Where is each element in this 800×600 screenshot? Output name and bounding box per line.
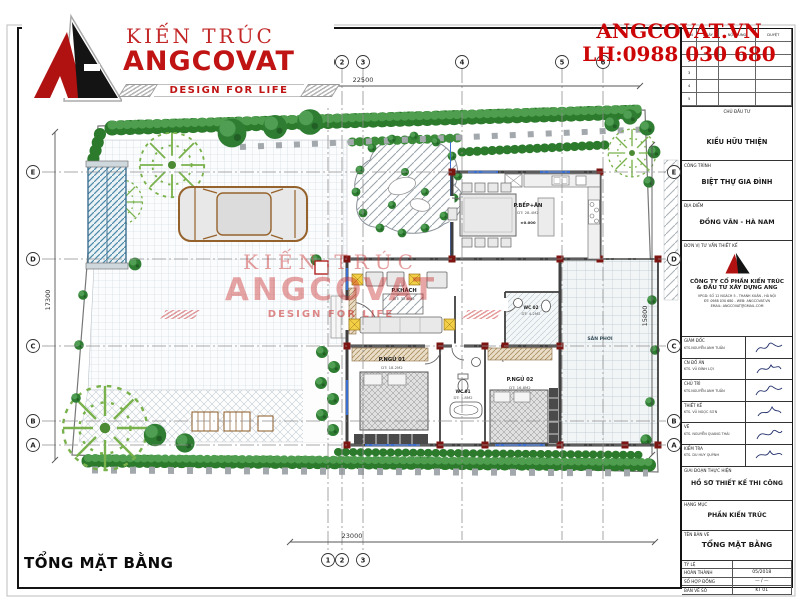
grid-col-6: 6	[601, 59, 606, 67]
meta-date-value: 05/2018	[733, 569, 792, 578]
stage-value: HỒ SƠ THIẾT KẾ THI CÔNG	[682, 480, 792, 487]
car	[179, 187, 307, 241]
location-label: ĐỊA ĐIỂM	[682, 201, 792, 208]
stage-label: GIAI ĐOẠN THỰC HIỆN	[682, 467, 792, 474]
company-logo: KIẾN TRÚC ANGCOVAT DESIGN FOR LIFE	[22, 14, 334, 108]
side-strip-hatch	[664, 160, 678, 300]
room-label-yard: SÂN PHƠI	[587, 335, 613, 342]
rev-row-4: 4	[682, 80, 697, 93]
grid-col-2: 2	[340, 59, 345, 67]
grid-row-d2: D	[671, 256, 677, 264]
planter-box	[315, 261, 328, 274]
project-label: CÔNG TRÌNH	[682, 161, 792, 168]
rev-col-noidung: NỘI DUNG	[719, 29, 755, 42]
grid-col-2b: 2	[340, 557, 345, 565]
category-label: HẠNG MỤC	[682, 501, 792, 508]
consultant-addr3: EMAIL: ANGCOVAT@GMAIL.COM	[682, 304, 792, 309]
room-label-bed1: P.NGỦ 01	[379, 355, 406, 363]
meta-scale-label: TỶ LỆ	[682, 561, 733, 570]
logo-tagline-ribbon: DESIGN FOR LIFE	[122, 84, 336, 97]
grid-row-b2: B	[671, 418, 676, 426]
meta-contract-value: — / —	[733, 578, 792, 587]
logo-tagline: DESIGN FOR LIFE	[154, 84, 304, 97]
meta-contract-label: SỐ HỢP ĐỒNG	[682, 578, 733, 587]
grid-row-d: D	[30, 256, 36, 264]
signature-row: CN ĐỒ ÁNKTS. VŨ ĐÌNH LỢI	[682, 359, 792, 381]
meta-sheetno-label: BẢN VẼ SỐ	[682, 586, 733, 595]
project-value: BIỆT THỰ GIA ĐÌNH	[682, 178, 792, 186]
sheet-name-label: TÊN BẢN VẼ	[682, 531, 792, 538]
ribbon-hatch-right	[300, 84, 340, 97]
grid-row-c: C	[31, 343, 36, 351]
grid-col-1b: 1	[326, 557, 331, 565]
signature-row: VẼKTS. NGUYỄN QUANG THÁI	[682, 423, 792, 445]
project-section: CÔNG TRÌNH BIỆT THỰ GIA ĐÌNH	[682, 161, 792, 201]
signature-row: THIẾT KẾKTS. VŨ NGỌC SƠN	[682, 402, 792, 424]
plan-title: TỔNG MẶT BẰNG	[24, 554, 173, 572]
grid-row-e2: E	[672, 169, 677, 177]
grid-row-c2: C	[672, 343, 677, 351]
grid-col-4: 4	[460, 59, 465, 67]
dim-right: 15800	[641, 306, 649, 327]
meta-sheetno-value: KT 01	[733, 586, 792, 595]
signature-icon	[752, 382, 786, 398]
sheet-name-value: TỔNG MẶT BẰNG	[682, 540, 792, 549]
category-value: PHẦN KIẾN TRÚC	[682, 512, 792, 519]
room-area-bed1: DT: 18.2M2	[381, 365, 403, 370]
drawing-sheet: 22500 23000 17300 15800 1 2 3 4 5 6 1 2 …	[0, 0, 800, 600]
rev-row-1: 1	[682, 42, 697, 55]
signature-icon	[752, 447, 786, 463]
logo-name: ANGCOVAT	[123, 46, 295, 77]
signature-icon	[752, 426, 786, 442]
location-section: ĐỊA ĐIỂM ĐỒNG VĂN - HÀ NAM	[682, 201, 792, 241]
signature-rows: GIÁM ĐỐCKTS.NGUYỄN ANH TUẤN CN ĐỒ ÁNKTS.…	[682, 337, 792, 467]
grid-col-5: 5	[560, 59, 565, 67]
logo-kien-truc: KIẾN TRÚC	[126, 24, 275, 48]
room-label-bed2: P.NGỦ 02	[507, 375, 534, 383]
rev-col-ngay: NGÀY	[697, 29, 719, 42]
investor-value: KIỀU HỮU THIỆN	[682, 138, 792, 146]
consultant-logo-icon	[722, 249, 752, 275]
room-label-wc1: WC 01	[456, 389, 471, 394]
title-block: LẦN NGÀY NỘI DUNG DUYỆT 1 2 3 4 5 CHỦ ĐẦ…	[681, 28, 793, 588]
logo-triangle-icon	[22, 14, 122, 102]
grid-row-b: B	[30, 418, 35, 426]
grid-row-a2: A	[671, 442, 677, 450]
revision-table: LẦN NGÀY NỘI DUNG DUYỆT 1 2 3 4 5	[682, 29, 792, 107]
rev-row-3: 3	[682, 67, 697, 80]
room-label-kitchen: P.BẾP+ĂN	[514, 201, 543, 209]
consultant-company2: & ĐẦU TƯ XÂY DỰNG ANG	[682, 285, 792, 292]
grid-row-a: A	[30, 442, 36, 450]
room-label-wc2: WC 02	[524, 305, 539, 310]
room-label-living: P.KHÁCH	[391, 287, 416, 294]
room-area-bed2: DT: 16.8M2	[509, 385, 531, 390]
grid-col-3b: 3	[361, 557, 366, 565]
rev-row-5: 5	[682, 93, 697, 106]
consultant-label: ĐƠN VỊ TƯ VẤN THIẾT KẾ	[682, 241, 792, 248]
meta-date-label: HOÀN THÀNH	[682, 569, 733, 578]
sheet-name-section: TÊN BẢN VẼ TỔNG MẶT BẰNG	[682, 531, 792, 561]
dim-left: 17300	[44, 290, 52, 311]
room-area-wc1: DT: 5.8M2	[453, 395, 473, 400]
rev-col-lan: LẦN	[682, 29, 697, 42]
signature-row: CHỦ TRÌKTS.NGUYỄN ANH TUẤN	[682, 380, 792, 402]
signature-row: GIÁM ĐỐCKTS.NGUYỄN ANH TUẤN	[682, 337, 792, 359]
meta-scale-value	[733, 561, 792, 570]
drying-yard-tiles	[560, 259, 658, 445]
rev-row-2: 2	[682, 55, 697, 68]
grid-row-e: E	[31, 169, 36, 177]
stage-section: GIAI ĐOẠN THỰC HIỆN HỒ SƠ THIẾT KẾ THI C…	[682, 467, 792, 501]
dim-top: 22500	[353, 76, 374, 84]
entry-gate	[86, 161, 128, 269]
signature-row: KIỂM TRAKTS. DU HUY QUỲNH	[682, 445, 792, 467]
location-value: ĐỒNG VĂN - HÀ NAM	[682, 218, 792, 226]
rev-col-duyet: DUYỆT	[756, 29, 792, 42]
room-area-wc2: DT: 4.2M2	[521, 311, 541, 316]
ribbon-hatch-left	[118, 84, 158, 97]
room-area-kitchen: DT: 28.4M2	[517, 210, 539, 215]
room-area-living: DT: 32.6M2	[393, 296, 415, 301]
dim-bottom: 23000	[342, 532, 363, 540]
investor-section: CHỦ ĐẦU TƯ KIỀU HỮU THIỆN	[682, 107, 792, 161]
signature-icon	[752, 339, 786, 355]
level-marker: ±0.000	[520, 220, 536, 225]
signature-icon	[752, 404, 786, 420]
grid-col-3: 3	[361, 59, 366, 67]
meta-table: TỶ LỆ HOÀN THÀNH05/2018 SỐ HỢP ĐỒNG— / —…	[682, 561, 792, 595]
investor-label: CHỦ ĐẦU TƯ	[682, 107, 792, 114]
category-section: HẠNG MỤC PHẦN KIẾN TRÚC	[682, 501, 792, 531]
signature-icon	[752, 361, 786, 377]
consultant-section: ĐƠN VỊ TƯ VẤN THIẾT KẾ CÔNG TY CỔ PHẦN K…	[682, 241, 792, 337]
